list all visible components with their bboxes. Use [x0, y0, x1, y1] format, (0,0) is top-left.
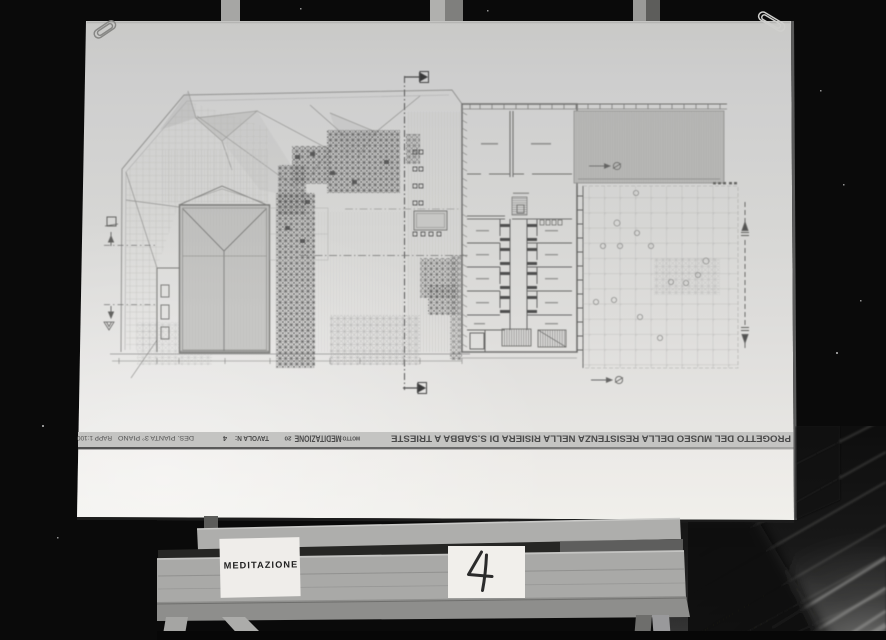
svg-text:MEDITAZIONE: MEDITAZIONE: [294, 434, 341, 444]
svg-text:20: 20: [285, 435, 292, 441]
svg-text:DES. PIANTA 3° PIANO: DES. PIANTA 3° PIANO: [118, 434, 194, 441]
svg-text:MOTTO:: MOTTO:: [341, 435, 360, 441]
svg-text:TAVOLA N:: TAVOLA N:: [235, 434, 269, 441]
svg-text:MEDITAZIONE: MEDITAZIONE: [224, 559, 299, 570]
svg-text:RAPP 1:100: RAPP 1:100: [76, 434, 112, 441]
svg-text:PROGETTO DEL MUSEO DELLA RESIS: PROGETTO DEL MUSEO DELLA RESISTENZA NELL…: [391, 434, 791, 444]
